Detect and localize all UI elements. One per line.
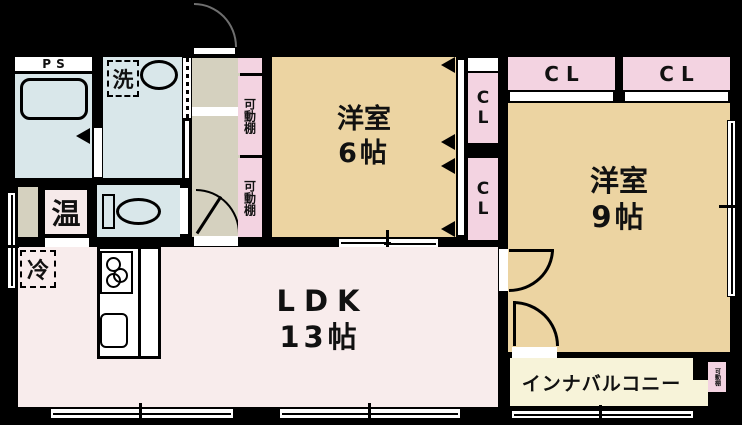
water-heater-door — [45, 238, 89, 247]
closet-arrow-icon-2 — [441, 134, 455, 150]
closet-side-lower-label: CL — [473, 179, 493, 219]
shelf-lower-label: 可動棚 — [242, 180, 259, 216]
shelf-strip-cap — [238, 58, 262, 73]
hallway-ldk-door — [194, 236, 238, 246]
west9-entry-door — [499, 249, 508, 291]
entrance-door-arc — [194, 3, 237, 47]
floorplan-canvas: PS 洗 温 可動棚 可動棚 洋室 6帖 — [0, 0, 742, 425]
accordion-door — [183, 58, 191, 118]
window-west9-right — [727, 120, 736, 297]
water-heater-nook — [18, 187, 38, 237]
closet-arrow-icon-4 — [441, 221, 455, 237]
western9-size: 9帖 — [539, 199, 699, 235]
bathroom-door-arrow-icon — [76, 128, 90, 144]
ldk-name: LDK — [228, 283, 417, 319]
kitchen-sink-icon — [100, 313, 128, 348]
fridge-label: 冷 — [27, 253, 49, 285]
balcony-label-wrap: インナバルコニー — [510, 358, 693, 406]
room-balcony-ext — [693, 380, 708, 406]
closet-top-right-label: CL — [659, 62, 700, 86]
balcony-entry-door — [512, 347, 557, 358]
balcony-window-tick — [599, 405, 602, 423]
ps-band: PS — [15, 57, 92, 74]
balcony-window — [510, 409, 695, 420]
window-left — [7, 192, 16, 289]
window-west9-tick — [719, 205, 737, 208]
toilet-door — [180, 188, 188, 234]
toilet-bowl-icon — [116, 198, 161, 225]
closet-side-upper: CL — [468, 73, 498, 143]
water-heater-box: 温 — [42, 187, 90, 237]
closet-top-right: CL — [623, 57, 730, 90]
ldk-label: LDK 13帖 — [228, 283, 408, 356]
window-bottom-2-tick — [368, 403, 371, 424]
kitchen-divider — [138, 246, 141, 359]
water-heater-label: 温 — [51, 191, 80, 233]
shelf-upper: 可動棚 — [238, 76, 262, 155]
pocket-door — [183, 121, 191, 178]
entrance-step — [192, 107, 240, 116]
washing-machine-box: 洗 — [107, 60, 139, 97]
bathtub-icon — [20, 78, 88, 120]
balcony-label: インナバルコニー — [522, 369, 682, 396]
western6-size: 6帖 — [284, 137, 444, 171]
sink-icon — [140, 60, 178, 90]
fridge-box: 冷 — [20, 250, 56, 288]
ldk-size: 13帖 — [228, 319, 412, 355]
window-bottom-1-tick — [139, 403, 142, 424]
closet-side-upper-label: CL — [473, 88, 493, 128]
closet-top-left: CL — [508, 57, 615, 90]
burner-icon-3 — [106, 273, 121, 288]
western6-label: 洋室 6帖 — [284, 103, 444, 171]
closet-side-lower: CL — [468, 158, 498, 240]
western9-label: 洋室 9帖 — [539, 163, 699, 236]
stove-icon — [100, 251, 133, 294]
ps-label: PS — [42, 57, 69, 71]
window-left-tick — [1, 245, 19, 248]
shelf-lower: 可動棚 — [238, 158, 262, 237]
closet-arrow-icon-3 — [441, 158, 455, 174]
washing-machine-label: 洗 — [113, 64, 134, 94]
window-bottom-1 — [49, 407, 235, 420]
balcony-shelf-box: 可動棚 — [708, 362, 726, 392]
corner-track-white — [468, 58, 498, 71]
closet-top-right-door — [623, 90, 730, 103]
shelf-upper-label: 可動棚 — [242, 98, 259, 134]
entrance-door — [192, 46, 237, 56]
balcony-shelf-label: 可動棚 — [713, 368, 722, 386]
closet-arrow-icon-1 — [441, 57, 455, 73]
door-bath-washroom — [94, 128, 102, 177]
closet-track-6jo — [456, 58, 466, 237]
western9-name: 洋室 — [539, 163, 699, 199]
toilet-tank-icon — [102, 194, 115, 229]
closet-top-left-door — [508, 90, 615, 103]
western6-name: 洋室 — [284, 103, 444, 137]
closet-top-left-label: CL — [544, 62, 585, 86]
